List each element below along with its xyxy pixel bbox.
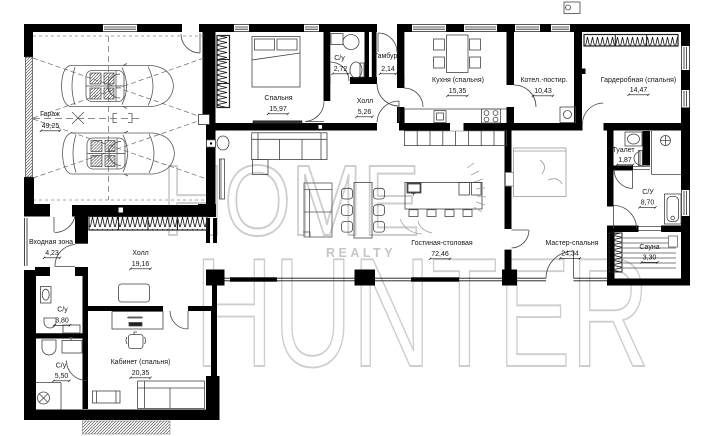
svg-text:Холл: Холл	[132, 250, 149, 257]
svg-text:Кабинет (спальня): Кабинет (спальня)	[111, 358, 171, 366]
svg-text:5,50: 5,50	[55, 373, 69, 380]
svg-text:3,80: 3,80	[55, 318, 69, 325]
svg-text:Кухня (спальня): Кухня (спальня)	[432, 77, 484, 84]
svg-text:15,35: 15,35	[449, 88, 467, 95]
svg-text:8,70: 8,70	[641, 200, 655, 207]
svg-text:72,46: 72,46	[431, 251, 449, 258]
svg-text:49,25: 49,25	[42, 123, 60, 130]
svg-text:20,35: 20,35	[132, 370, 150, 377]
svg-text:10,43: 10,43	[534, 88, 552, 95]
svg-text:3,30: 3,30	[643, 255, 657, 262]
svg-text:HUNTER: HUNTER	[195, 226, 650, 399]
svg-text:Мастер-спальня: Мастер-спальня	[545, 240, 598, 247]
svg-text:Туалет: Туалет	[612, 147, 635, 154]
svg-text:С/у: С/у	[334, 55, 345, 62]
svg-text:Тамбур: Тамбур	[374, 52, 398, 60]
svg-text:Сауна: Сауна	[639, 244, 659, 251]
svg-text:Гараж: Гараж	[40, 111, 60, 118]
svg-text:Котел.-постир.: Котел.-постир.	[520, 77, 567, 84]
svg-text:Гостиная-столовая: Гостиная-столовая	[411, 240, 473, 247]
svg-text:Входная зона: Входная зона	[29, 239, 73, 246]
svg-text:2,14: 2,14	[381, 66, 395, 73]
svg-text:Холл: Холл	[357, 98, 374, 105]
svg-text:С/у: С/у	[56, 363, 67, 370]
svg-text:15,97: 15,97	[269, 106, 287, 113]
svg-text:Спальня: Спальня	[264, 95, 292, 102]
svg-text:1,87: 1,87	[618, 157, 632, 164]
svg-text:14,47: 14,47	[630, 87, 648, 94]
svg-text:4,23: 4,23	[45, 250, 59, 257]
svg-text:С/У: С/У	[642, 189, 654, 196]
svg-text:Гардеробная (спальня): Гардеробная (спальня)	[601, 76, 677, 84]
svg-text:С/у: С/у	[57, 307, 68, 314]
svg-text:19,16: 19,16	[132, 261, 150, 268]
svg-text:2,72: 2,72	[334, 66, 348, 73]
svg-text:24,34: 24,34	[561, 251, 579, 258]
svg-text:5,26: 5,26	[358, 109, 372, 116]
